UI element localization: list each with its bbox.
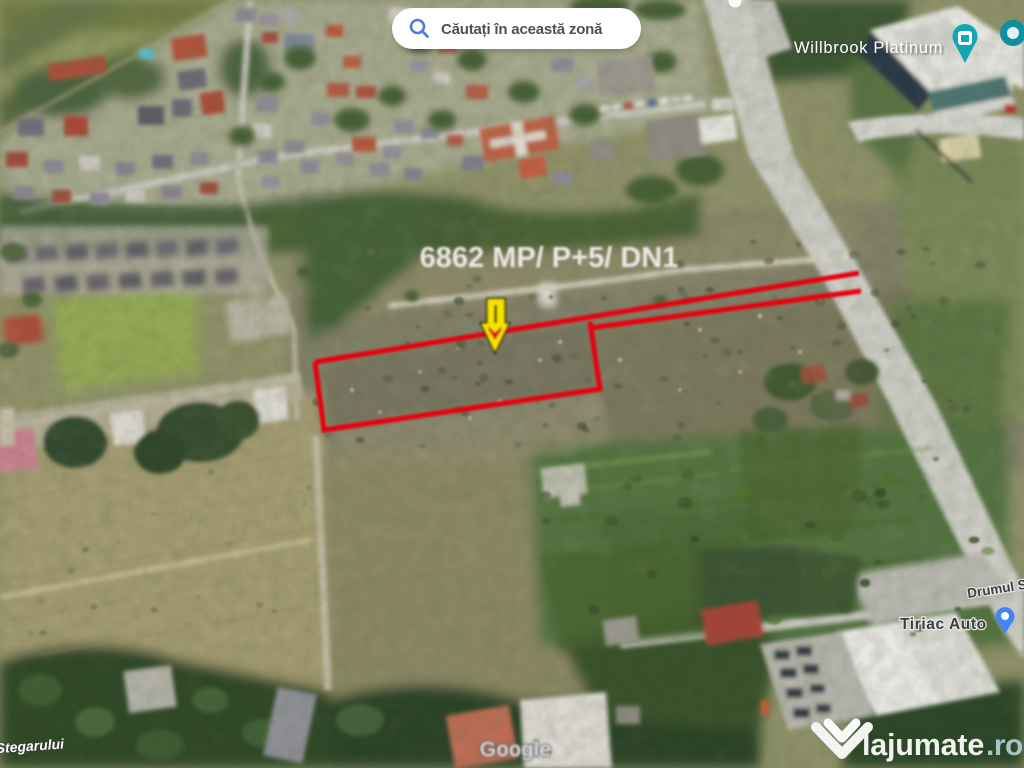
svg-text:Google: Google (480, 738, 552, 761)
svg-text:lajumate: lajumate (862, 728, 984, 762)
svg-text:Căutați în această zonă: Căutați în această zonă (441, 21, 603, 38)
svg-text:Willbrook Platinum: Willbrook Platinum (794, 39, 943, 57)
svg-text:Tiriac Auto: Tiriac Auto (900, 616, 987, 633)
svg-text:.ro: .ro (986, 729, 1023, 762)
svg-text:6862 MP/ P+5/ DN1: 6862 MP/ P+5/ DN1 (420, 242, 679, 274)
